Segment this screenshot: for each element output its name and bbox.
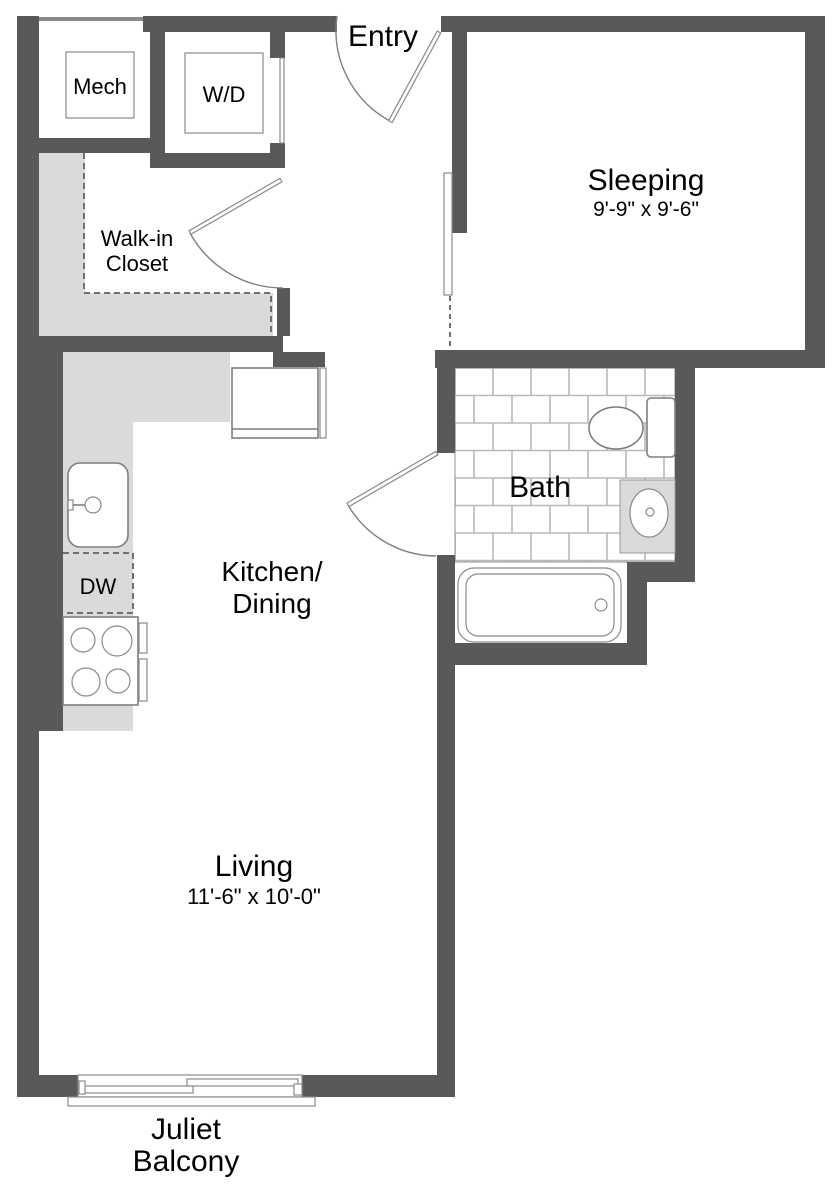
closet-shelf-bottom [39,293,273,336]
wall-segment [302,1075,455,1097]
wall-segment [150,153,285,168]
balcony-door-handle [294,1084,302,1095]
sleeping-label: Sleeping [588,164,705,197]
walkin-door-swing-arc [190,233,283,288]
living-dimensions: 11'-6" x 10'-0" [187,884,321,909]
mech-label: Mech [73,74,127,99]
kitchen-sink [68,463,128,547]
wall-segment [627,562,695,582]
bathtub-drain [595,599,607,611]
sleeping-doorway [444,173,452,350]
toilet-tank [647,398,675,457]
fridge [232,368,326,438]
wall-segment [452,32,467,233]
wd-pocket-door [280,58,284,143]
walkin-closet-door [189,178,283,288]
entry-label: Entry [348,20,418,53]
sink-faucet-knob [85,497,101,513]
stove-burner [71,628,95,652]
balcony-rail [68,1097,315,1106]
floor-plan-page: Entry Sleeping 9'-9" x 9'-6" Walk-in Clo… [0,0,840,1188]
sink-faucet-base [68,500,73,510]
fridge-body [232,368,318,438]
wall-segment [441,16,825,32]
wall-segment [17,16,39,1097]
stove-burner [102,626,132,656]
toilet-bowl [589,407,643,449]
balcony-slider [68,1075,315,1106]
stove [63,617,147,705]
closet-label-line2: Closet [106,251,168,276]
vanity-drain [646,508,654,516]
wall-segment [437,643,647,665]
wall-segment [150,32,165,153]
bathtub [458,568,621,642]
floor-plan-svg: Entry Sleeping 9'-9" x 9'-6" Walk-in Clo… [0,0,840,1188]
living-label: Living [215,850,293,883]
wall-segment [435,350,825,368]
wall-segment [39,138,151,153]
walkin-door-leaf [189,178,282,234]
bath-door-swing-arc [348,505,436,556]
bath-label: Bath [509,471,571,504]
balcony-label-line1: Juliet [151,1113,222,1146]
stove-handle [139,659,147,701]
bathtub-inner [466,574,614,636]
kitchen-counter-lower [63,705,133,731]
wall-segment [270,32,285,58]
wall-segment [39,336,63,731]
wall-segment [277,288,290,336]
wall-segment [143,16,337,32]
balcony-door-panel [83,1086,193,1093]
sleeping-sliding-door [444,173,452,295]
mech-top-line [39,17,143,21]
bath-door-leaf [347,451,438,506]
balcony-label-line2: Balcony [133,1145,240,1178]
vanity [620,480,675,553]
wall-segment [805,16,825,368]
sleeping-dimensions: 9'-9" x 9'-6" [593,198,699,221]
fridge-door-edge [320,368,326,438]
balcony-door-panel [187,1079,298,1086]
wall-segment [17,1075,78,1097]
wall-segment [437,368,455,453]
wall-segment [675,368,695,582]
wall-segment [437,555,455,1097]
stove-burner [72,668,100,696]
dishwasher-label: DW [80,574,117,599]
stove-burner [106,669,130,693]
kitchen-counter-top [63,352,230,422]
balcony-door-handle [79,1081,85,1094]
wall-segment [273,352,325,367]
bath-door [347,451,438,556]
kitchen-label-line1: Kitchen/ [221,556,322,587]
closet-label-line1: Walk-in [101,226,174,251]
kitchen-label-line2: Dining [232,588,311,619]
wall-segment [17,336,283,352]
wd-label: W/D [203,82,246,107]
stove-handle [139,623,147,653]
